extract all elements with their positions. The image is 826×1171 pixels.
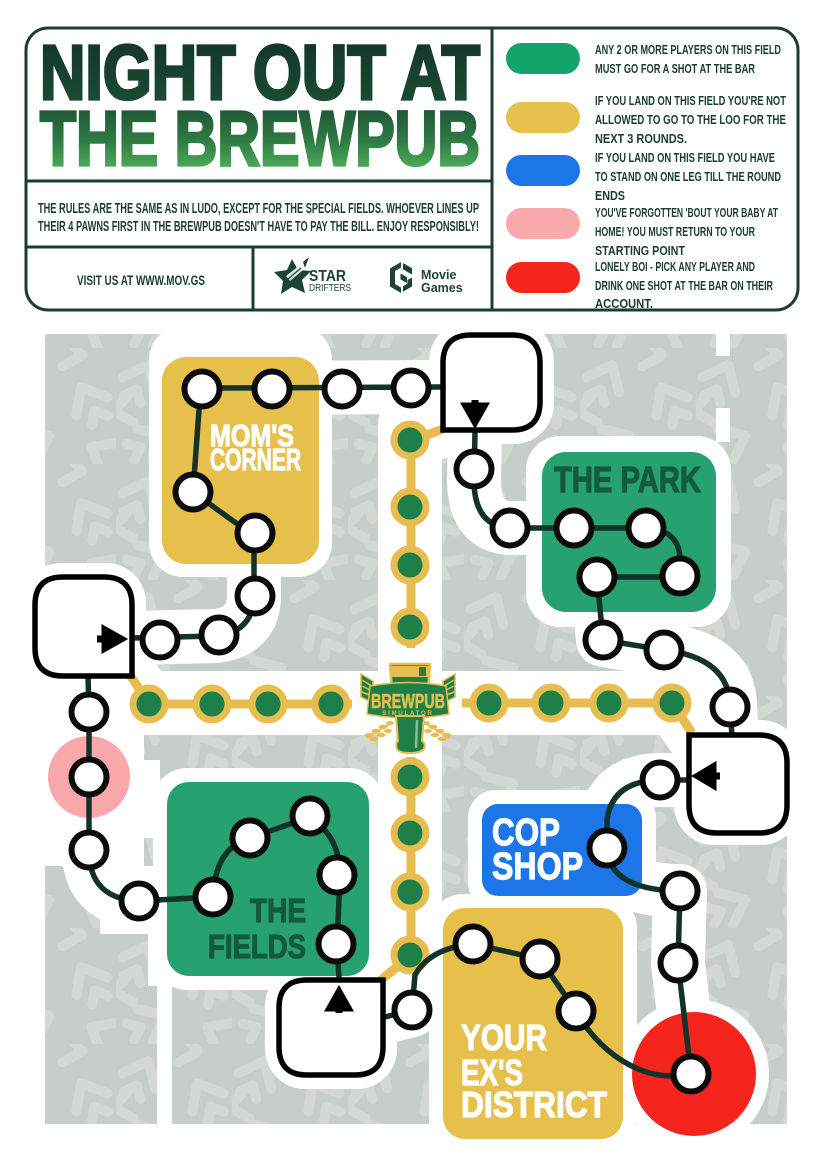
svg-text:IF YOU LAND ON THIS FIELD YOU: IF YOU LAND ON THIS FIELD YOU HAVE: [595, 150, 775, 165]
svg-text:FIELDS: FIELDS: [208, 928, 306, 965]
svg-text:NEXT 3 ROUNDS.: NEXT 3 ROUNDS.: [595, 131, 687, 146]
svg-text:DISTRICT: DISTRICT: [461, 1084, 607, 1125]
svg-text:THE RULES ARE THE SAME AS IN L: THE RULES ARE THE SAME AS IN LUDO, EXCEP…: [38, 201, 479, 217]
svg-text:ANY 2 OR MORE PLAYERS ON THIS: ANY 2 OR MORE PLAYERS ON THIS FIELD: [595, 42, 781, 57]
svg-text:DRIFTERS: DRIFTERS: [309, 283, 351, 294]
svg-text:LONELY BOI - PICK ANY PLAYER A: LONELY BOI - PICK ANY PLAYER AND: [595, 259, 755, 274]
svg-text:THEIR 4 PAWNS FIRST IN THE BRE: THEIR 4 PAWNS FIRST IN THE BREWPUB DOESN…: [38, 219, 479, 235]
svg-text:HOME! YOU MUST RETURN TO YOUR: HOME! YOU MUST RETURN TO YOUR: [595, 224, 755, 239]
svg-text:TO STAND ON ONE LEG TILL THE R: TO STAND ON ONE LEG TILL THE ROUND: [595, 169, 781, 184]
svg-text:Movie: Movie: [421, 268, 456, 282]
svg-text:BREWPUB: BREWPUB: [371, 691, 445, 713]
svg-text:ENDS: ENDS: [595, 188, 625, 203]
svg-text:CORNER: CORNER: [210, 442, 301, 477]
svg-text:THE PARK: THE PARK: [554, 459, 701, 500]
svg-text:IF YOU LAND ON THIS FIELD YOU': IF YOU LAND ON THIS FIELD YOU'RE NOT: [595, 93, 786, 108]
svg-text:THE BREWPUB: THE BREWPUB: [40, 96, 480, 182]
svg-text:STARTING POINT: STARTING POINT: [595, 243, 685, 258]
svg-text:ALLOWED TO GO TO THE LOO FOR T: ALLOWED TO GO TO THE LOO FOR THE: [595, 112, 786, 127]
svg-text:VISIT US AT WWW.MOV.GS: VISIT US AT WWW.MOV.GS: [77, 273, 205, 288]
svg-text:MUST GO FOR A SHOT AT THE BAR: MUST GO FOR A SHOT AT THE BAR: [595, 61, 755, 76]
svg-text:YOU'VE FORGOTTEN 'BOUT YOUR BA: YOU'VE FORGOTTEN 'BOUT YOUR BABY AT: [595, 205, 778, 220]
svg-text:ACCOUNT.: ACCOUNT.: [595, 296, 653, 311]
svg-text:SHOP: SHOP: [492, 846, 583, 888]
svg-text:Games: Games: [421, 281, 463, 295]
svg-text:THE: THE: [250, 892, 306, 929]
svg-text:DRINK ONE SHOT AT THE BAR ON T: DRINK ONE SHOT AT THE BAR ON THEIR: [595, 278, 773, 293]
